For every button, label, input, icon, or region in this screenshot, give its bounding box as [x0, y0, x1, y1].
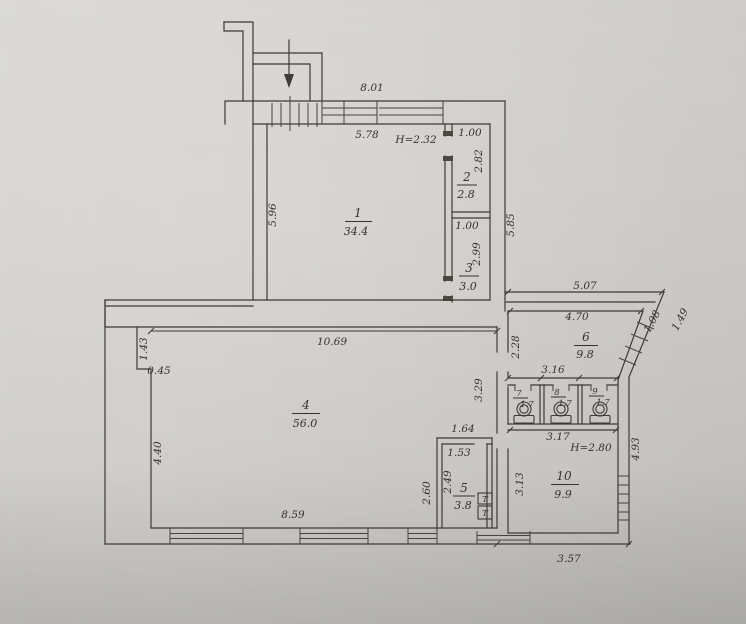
room-4-number: 4 [301, 398, 310, 412]
room-7-label: 7 1.7 [513, 389, 534, 410]
water-tank-fixtures: T T [478, 493, 492, 519]
room-2-label: 2 2.8 [456, 170, 477, 201]
dim-left-step-upper: 1.43 [138, 337, 150, 361]
dim-room10-height-note: H=2.80 [569, 442, 612, 454]
dim-room10-right-height: 4.93 [630, 437, 642, 462]
room-2-number: 2 [462, 170, 471, 184]
dim-room10-width: 3.17 [546, 431, 570, 443]
room-3-number: 3 [465, 261, 473, 275]
dim-diag-outer: 1.49 [670, 306, 692, 333]
entrance-porch-walls [224, 22, 322, 131]
dim-room10-left-height: 3.13 [514, 472, 526, 496]
dim-room6-left-height: 2.28 [510, 335, 522, 360]
room-6-area: 9.8 [576, 348, 594, 361]
room-10-area: 9.9 [554, 488, 572, 501]
room-4-area: 56.0 [293, 417, 318, 430]
dim-left-step-width: 0.45 [147, 365, 171, 377]
dim-room1-depth: 5.96 [267, 203, 279, 227]
dim-room4-width: 10.69 [317, 336, 347, 348]
room-7-area: 1.7 [520, 400, 534, 410]
corner-diagonal-wall [618, 292, 664, 380]
dim-closet2-depth: 2.82 [473, 149, 485, 174]
dimension-lines [148, 289, 665, 547]
top-exterior-wall [225, 101, 505, 124]
room1-left-wall [253, 101, 267, 300]
right-exterior-wall [490, 101, 505, 300]
room-1-area: 34.4 [344, 225, 369, 238]
room-4-label: 4 56.0 [292, 398, 320, 430]
dim-closet3-width: 1.00 [455, 220, 479, 232]
room6-top-wall [505, 292, 664, 311]
room-3-area: 3.0 [459, 280, 477, 293]
dim-partition-height: 3.29 [473, 378, 485, 402]
dim-room6-outer-width: 5.07 [573, 280, 597, 292]
dim-room5-inner-width: 1.53 [447, 447, 471, 459]
room-2-area: 2.8 [456, 188, 475, 201]
dim-room5-outer-height: 2.60 [421, 481, 433, 506]
dim-room5-inner-height: 2.49 [442, 470, 454, 495]
bottom-exterior-wall [105, 528, 630, 544]
floor-plan-drawing: T T 8.01 5.78 H=2.32 1.00 2.82 1.00 2.99… [0, 0, 746, 624]
dimension-labels: 8.01 5.78 H=2.32 1.00 2.82 1.00 2.99 5.8… [138, 82, 691, 565]
dim-room6-inner-width: 4.70 [564, 311, 589, 323]
room4-right-partition [497, 311, 508, 533]
dim-room1-width: 5.78 [355, 129, 379, 141]
dim-stalls-width: 3.16 [541, 364, 565, 376]
room-5-area: 3.8 [454, 499, 472, 512]
room-1-label: 1 34.4 [344, 206, 372, 238]
dim-bottom-left-width: 8.59 [281, 509, 305, 521]
room4-left-wall [105, 300, 151, 544]
right-lower-exterior-wall [618, 377, 629, 544]
tank-label-2: T [482, 509, 489, 519]
dim-room5-outer-width: 1.64 [451, 423, 474, 435]
dim-closet2-width: 1.00 [458, 127, 482, 139]
dim-room1-height-note: H=2.32 [394, 134, 437, 146]
room-8-area: 1.7 [558, 399, 572, 409]
room-5-label: 5 3.8 [453, 481, 475, 512]
room-10-label: 10 9.9 [551, 469, 579, 501]
room-9-area: 1.7 [596, 398, 610, 408]
dim-diag-inner: 1.08 [642, 308, 664, 335]
middle-wall-band [105, 300, 497, 327]
room-5-number: 5 [460, 481, 468, 495]
room-10-number: 10 [556, 469, 572, 483]
dim-left-lower: 4.40 [152, 441, 164, 466]
room-6-number: 6 [582, 330, 590, 344]
room-1-number: 1 [354, 206, 362, 220]
room-6-label: 6 9.8 [574, 330, 598, 361]
dim-top-width: 8.01 [360, 82, 383, 94]
dim-right-side-height: 5.85 [505, 213, 517, 237]
scanned-floor-plan-sheet: T T 8.01 5.78 H=2.32 1.00 2.82 1.00 2.99… [0, 0, 746, 624]
dim-bottom-right-width: 3.57 [557, 553, 581, 565]
